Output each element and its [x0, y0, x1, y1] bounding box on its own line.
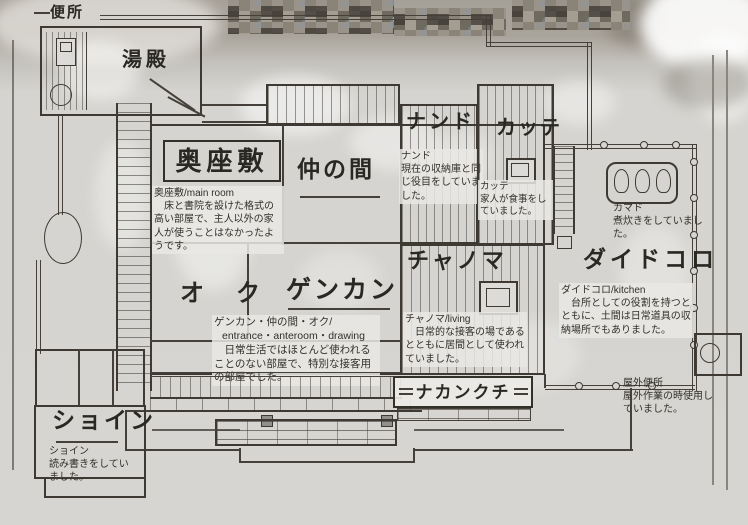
censor-mosaic [512, 0, 630, 30]
note-body: 日常的な接客の場であるとともに居間として使われていました。 [405, 326, 525, 366]
wall-line [78, 349, 80, 407]
note-title: チャノマ/living [405, 313, 525, 326]
toilet-fixture-detail [60, 42, 72, 52]
room-label-daidokoro: ダイドコロ [583, 248, 718, 271]
note-body: 家人が食事をしていました。 [480, 194, 552, 219]
wall-post [612, 382, 620, 390]
photo-of-floorplan-sign: 便所 湯殿 奥座敷 奥座敷/main room 床と書院を設けた格式の高い部屋で… [0, 0, 748, 525]
room-label-okuzashiki: 奥座敷 [175, 148, 268, 174]
west-corridor [116, 103, 152, 391]
room-label-chanoma: チャノマ [407, 250, 507, 272]
label-underline [288, 308, 390, 310]
note-chanoma: チャノマ/living 日常的な接客の場であるとともに居間として使われていました… [403, 312, 527, 367]
room-label-shoin: ショイン [52, 409, 156, 432]
wall-line [202, 104, 268, 106]
step-stone [557, 236, 572, 249]
note-body: 煮炊きをしていました。 [613, 215, 709, 241]
wall-post [600, 141, 608, 149]
shoin-veranda [44, 477, 146, 498]
boundary-line [36, 260, 41, 354]
site-line [414, 429, 564, 431]
room-labelbox-okuzashiki: 奥座敷 [163, 140, 281, 182]
note-title: ゲンカン・仲の間・オク/ [214, 316, 378, 330]
tree-shadow-blob [662, 58, 748, 108]
tick-line [514, 393, 528, 395]
kamado-burner [614, 169, 629, 193]
wall-post [575, 382, 583, 390]
tick-line [399, 393, 413, 395]
tub-circle [50, 84, 72, 106]
label-underline [56, 441, 118, 443]
hearth-katte-inner [511, 163, 529, 177]
label-underline [300, 196, 380, 198]
room-label-nakanoma: 仲の間 [297, 158, 375, 181]
room-label-benjo: 便所 [50, 5, 84, 20]
stone-steps [215, 419, 397, 446]
site-line [239, 461, 415, 463]
room-label-katte: カッテ [496, 118, 562, 138]
note-title: カマド [613, 202, 709, 215]
wall-post [672, 141, 680, 149]
note-title: カッテ [480, 181, 552, 194]
entrance-steps [397, 408, 531, 421]
note-body: 現在の収納庫と同じ役目をしていました。 [401, 163, 481, 203]
room-label-nakankuchi: ナカンクチ [416, 384, 511, 401]
outdoor-toilet-circle [700, 343, 720, 363]
note-body: 屋外作業の時使用していました。 [623, 390, 721, 416]
room-nakankuchi: ナカンクチ [393, 376, 533, 408]
note-title: ダイドコロ/kitchen [561, 284, 691, 297]
garden-stone [44, 212, 82, 264]
veranda-band [150, 399, 422, 412]
note-kamado: カマド 煮炊きをしていました。 [611, 201, 711, 243]
note-outdoor-toilet: 屋外便所 屋外作業の時使用していました。 [621, 376, 723, 418]
note-subtitle: entrance・anteroom・drawing [214, 330, 378, 344]
steps-to-daidokoro [553, 146, 575, 234]
site-line [630, 388, 632, 451]
hearth-chanoma-inner [486, 288, 510, 307]
note-body: 床と書院を設けた格式の高い部屋で、主人以外の家人が使うことはなかったようです。 [154, 200, 282, 253]
room-label-genkan: ゲンカン [286, 278, 398, 303]
fence-line [34, 12, 50, 14]
fence-line [486, 42, 592, 47]
note-title: 奥座敷/main room [154, 187, 282, 200]
note-katte: カッテ 家人が食事をしていました。 [478, 180, 554, 220]
wall-line [112, 349, 114, 407]
site-line [152, 429, 240, 431]
wall-post [690, 158, 698, 166]
wall-post [640, 141, 648, 149]
room-label-yudono: 湯殿 [122, 50, 170, 70]
note-okuzashiki: 奥座敷/main room 床と書院を設けた格式の高い部屋で、主人以外の家人が使… [152, 186, 284, 254]
note-body: 台所としての役割を持つとともに、土間は日常道具の収納場所でもありました。 [561, 297, 691, 337]
wall-line [544, 374, 546, 388]
fence-line [587, 42, 592, 150]
room-label-nando: ナンド [406, 112, 475, 132]
kamado-burner [635, 169, 650, 193]
tick-line [399, 388, 413, 390]
note-title: ショイン [49, 445, 129, 458]
note-title: 屋外便所 [623, 377, 721, 390]
note-title: ナンド [401, 150, 481, 163]
sign-frame-line [726, 50, 728, 490]
note-daidokoro: ダイドコロ/kitchen 台所としての役割を持つとともに、土間は日常道具の収納… [559, 283, 693, 338]
site-line [413, 449, 633, 451]
fence-line [100, 15, 490, 20]
tick-line [514, 388, 528, 390]
sign-frame-line [12, 40, 14, 470]
room-label-oku: オ ク [180, 282, 264, 306]
boundary-line [58, 115, 63, 215]
shoin-anteroom [35, 349, 145, 407]
kamado-burner [656, 169, 671, 193]
note-nando: ナンド 現在の収納庫と同じ役目をしていました。 [399, 149, 483, 204]
veranda-band [150, 377, 402, 399]
wall-line [202, 121, 268, 123]
north-veranda [266, 84, 400, 125]
